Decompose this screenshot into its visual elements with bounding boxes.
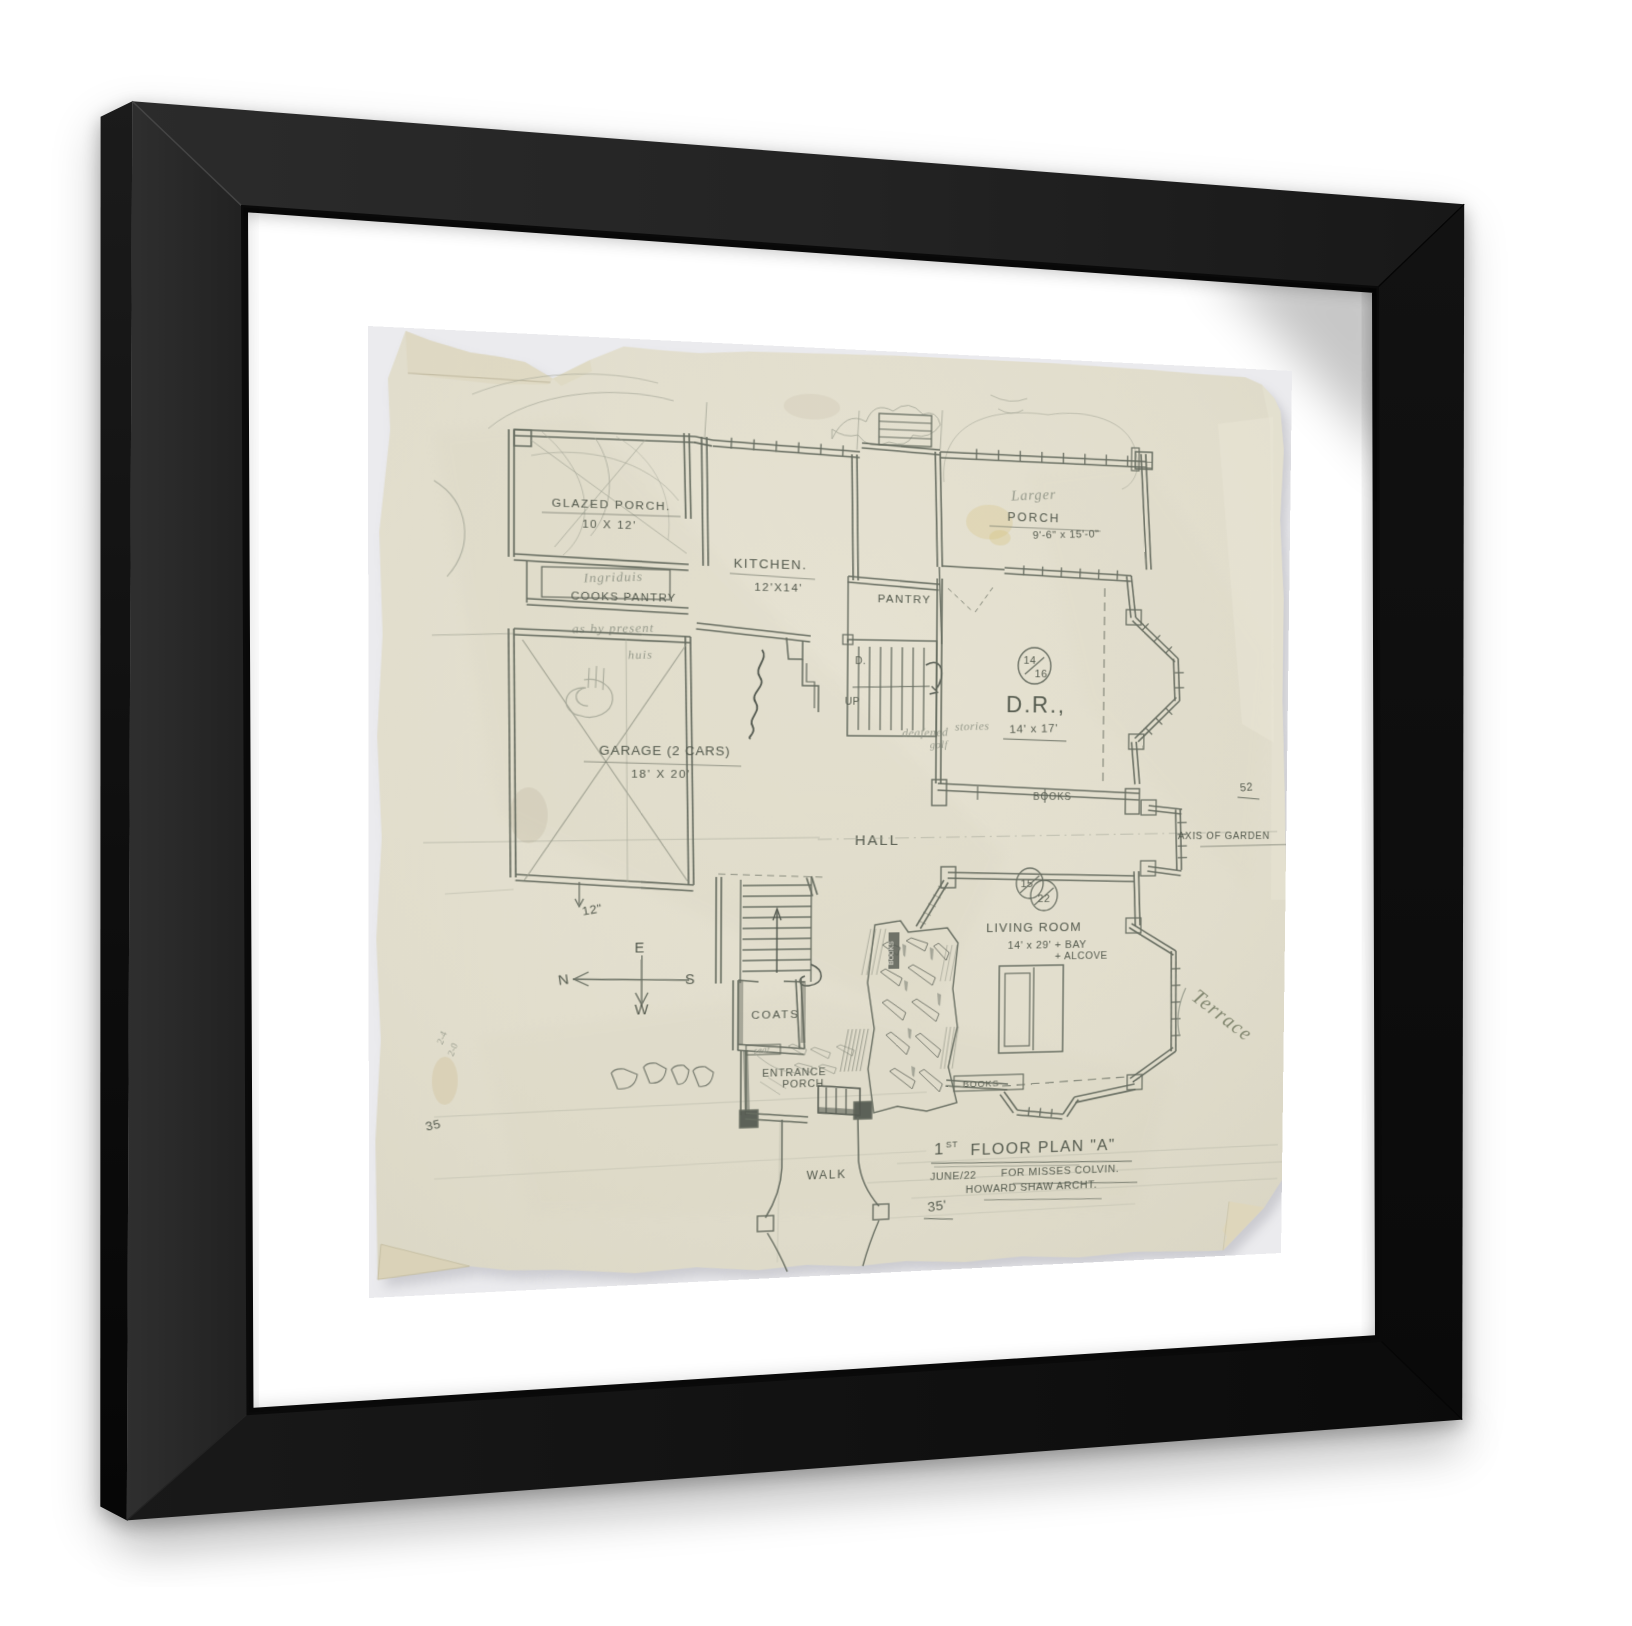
svg-text:D.: D. bbox=[855, 656, 866, 667]
svg-text:16: 16 bbox=[1035, 668, 1048, 680]
svg-text:JUNE/22: JUNE/22 bbox=[930, 1169, 977, 1183]
svg-text:COOKS PANTRY: COOKS PANTRY bbox=[571, 589, 677, 604]
svg-text:UP: UP bbox=[845, 697, 860, 708]
svg-text:AXIS OF GARDEN: AXIS OF GARDEN bbox=[1178, 831, 1270, 841]
svg-text:14: 14 bbox=[1023, 654, 1036, 666]
svg-text:35': 35' bbox=[927, 1198, 948, 1215]
svg-text:18' X 20': 18' X 20' bbox=[631, 768, 691, 781]
svg-text:BOOKS: BOOKS bbox=[1033, 792, 1072, 802]
svg-text:Larger: Larger bbox=[1010, 486, 1057, 504]
svg-text:9'-6" x 15'-0": 9'-6" x 15'-0" bbox=[1032, 528, 1099, 542]
svg-text:BOOKS: BOOKS bbox=[887, 941, 895, 965]
svg-text:14' x 17': 14' x 17' bbox=[1009, 721, 1058, 735]
svg-text:KITCHEN.: KITCHEN. bbox=[734, 557, 808, 573]
svg-text:S: S bbox=[685, 972, 695, 987]
svg-text:12'X14': 12'X14' bbox=[754, 581, 803, 595]
svg-text:COATS: COATS bbox=[751, 1008, 799, 1021]
svg-text:golf: golf bbox=[930, 740, 949, 751]
svg-text:HALL: HALL bbox=[855, 833, 900, 849]
svg-text:D.R.,: D.R., bbox=[1006, 693, 1066, 718]
svg-text:1: 1 bbox=[934, 1140, 944, 1159]
svg-text:10 X 12': 10 X 12' bbox=[582, 518, 637, 532]
svg-text:PORCH: PORCH bbox=[782, 1079, 824, 1091]
svg-text:14' x 29' + BAY: 14' x 29' + BAY bbox=[1008, 938, 1087, 951]
svg-text:BOOKS: BOOKS bbox=[963, 1079, 999, 1090]
svg-text:W: W bbox=[635, 1003, 649, 1019]
svg-text:GARAGE (2 CARS): GARAGE (2 CARS) bbox=[599, 744, 730, 759]
svg-text:N: N bbox=[557, 972, 570, 989]
svg-text:LIVING ROOM: LIVING ROOM bbox=[986, 921, 1081, 936]
svg-text:stories: stories bbox=[955, 719, 990, 733]
svg-text:huis: huis bbox=[628, 648, 653, 662]
svg-text:+ ALCOVE: + ALCOVE bbox=[1055, 951, 1108, 962]
svg-text:Ingriduis: Ingriduis bbox=[582, 570, 643, 586]
svg-text:PORCH: PORCH bbox=[1007, 510, 1060, 525]
svg-text:52: 52 bbox=[1239, 780, 1253, 794]
svg-text:WALK: WALK bbox=[806, 1167, 847, 1182]
svg-text:ST: ST bbox=[946, 1140, 958, 1150]
svg-text:E: E bbox=[635, 941, 645, 956]
svg-text:22: 22 bbox=[1038, 893, 1051, 905]
svg-text:PANTRY: PANTRY bbox=[878, 593, 932, 607]
svg-text:ENTRANCE: ENTRANCE bbox=[762, 1067, 826, 1079]
